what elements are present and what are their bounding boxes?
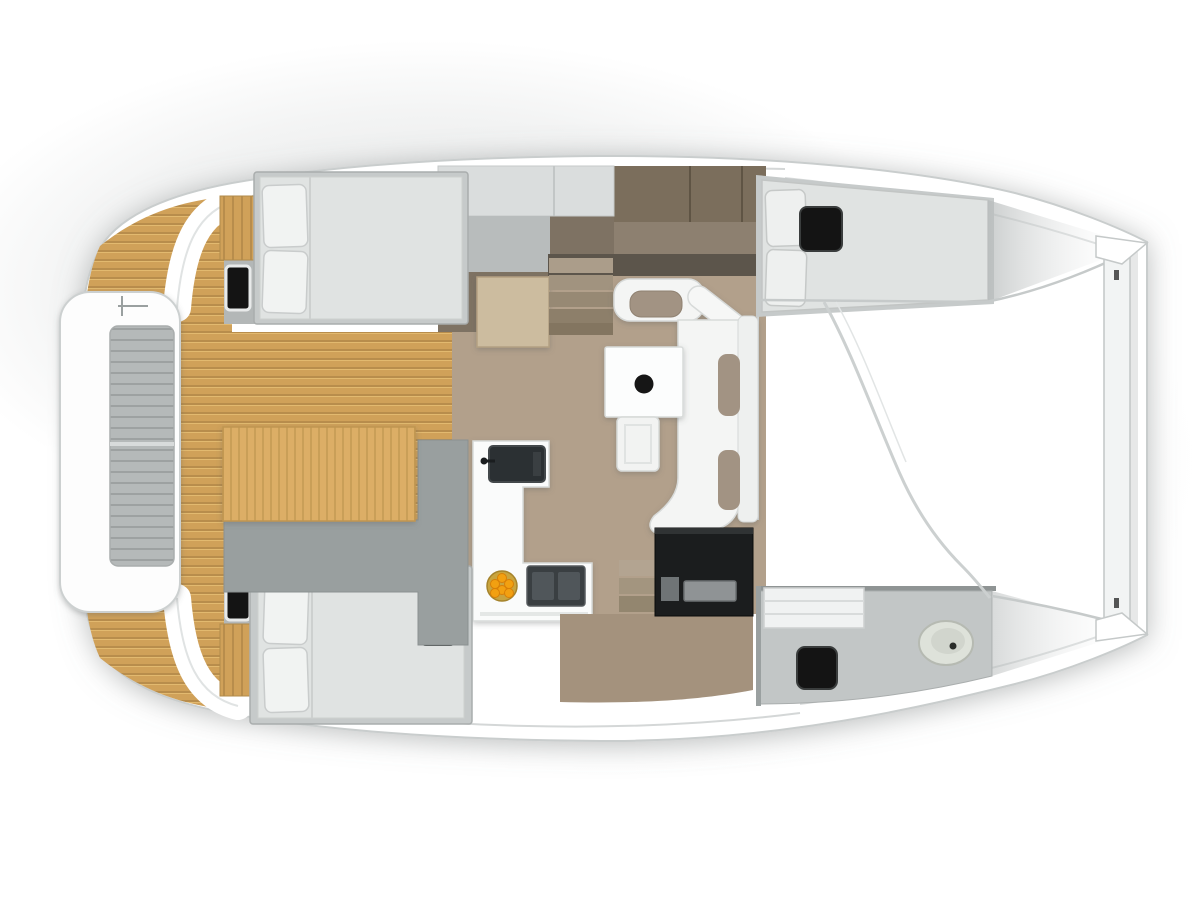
deck-hatch-forward [800,207,842,251]
vanity-counter [764,588,864,628]
stove-burner [558,572,580,600]
stair-step [549,309,613,323]
bathroom-divider-wall [756,586,761,706]
cockpit-wood-table [223,427,415,521]
pillow [262,250,308,313]
stair-step [549,275,613,290]
fruit-bowl [487,571,517,601]
appliance-drawer [684,581,736,601]
floorplan-svg [0,0,1200,898]
beam-fitting-bottom [1114,598,1119,608]
sofa-cushion [630,291,682,317]
stair-step [549,292,613,307]
beam-fitting-top [1114,270,1119,280]
black-appliance-unit [655,528,753,616]
port-forward-berth [756,175,994,317]
sofa-cushion [718,450,740,510]
stair-step [619,560,655,576]
deck-hatch-bathroom [797,647,837,689]
stair-step [549,258,613,273]
pillow [263,647,309,712]
stair-step [549,323,613,335]
sofa-cushion [718,354,740,416]
table-pedestal-dot [635,375,654,394]
crossbeam-shadow [1130,252,1138,628]
stern-platform [60,292,180,612]
wood-step-cabinet-stbd [220,624,254,696]
stair-step [619,578,655,594]
stair-step [619,596,655,612]
sink-basin-divider [533,452,541,476]
starboard-corridor-floor [560,614,753,703]
toilet-bowl [931,628,965,654]
appliance-panel [661,577,679,601]
port-aft-bed [254,172,468,324]
appliance-top-edge [655,528,753,534]
sofa-backrest [738,316,758,522]
deck-hatch-port-aft [226,266,250,310]
open-wardrobe-door [477,277,549,347]
pillow [765,249,807,306]
stern-platform-seam [110,442,174,446]
catamaran-floorplan-image [0,0,1200,898]
port-companionway-stairs [549,258,613,335]
toilet-flush-dot [950,643,957,650]
wood-step-cabinet-port [220,196,254,260]
pillow [262,184,308,247]
forward-crossbeam [1104,243,1130,635]
stove-burner [532,572,554,600]
